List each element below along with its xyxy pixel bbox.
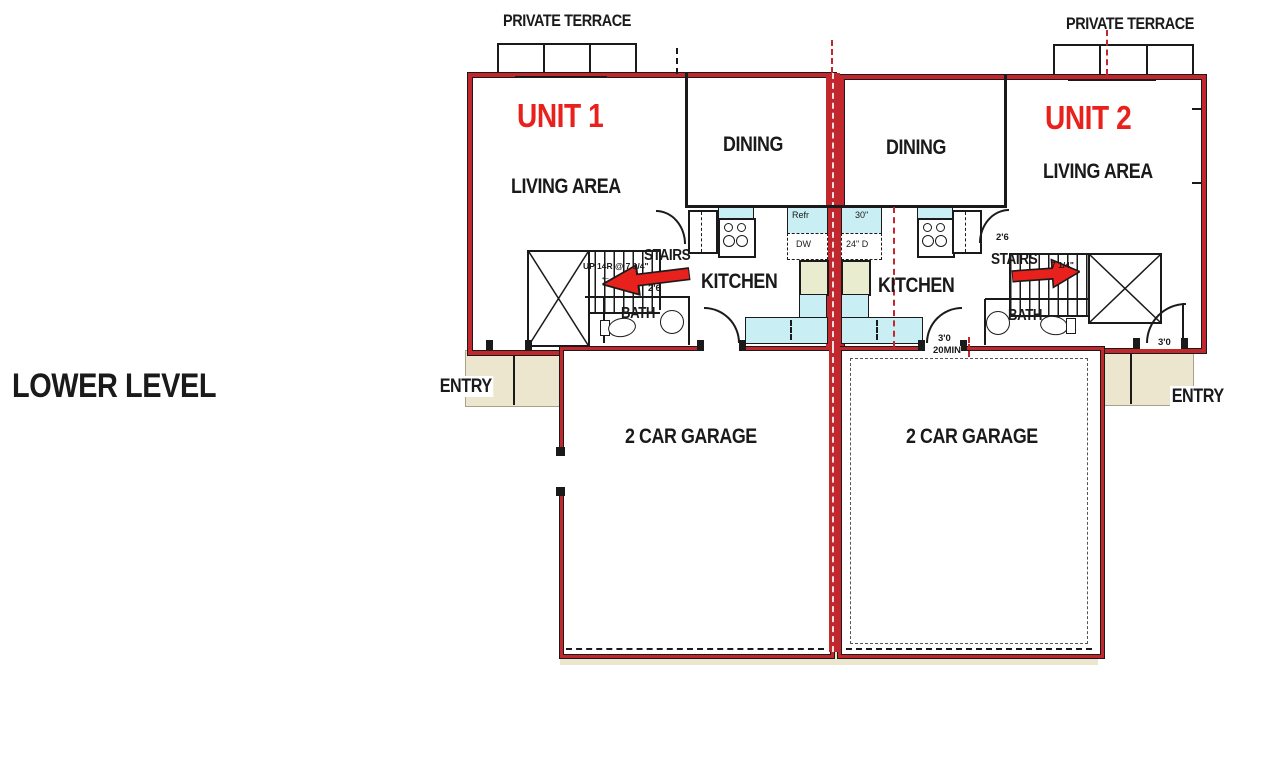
unit2-name: UNIT 2 — [1045, 101, 1131, 134]
unit1-entry-pad-divider — [513, 350, 515, 405]
unit1-dining-label: DINING — [723, 134, 783, 155]
unit2-garage-door-rating: 20MIN — [933, 346, 961, 356]
unit1-stairs-width: 2'6 — [648, 284, 661, 294]
unit2-garage-inset-dashed — [850, 358, 1088, 644]
unit1-garage-side-door-jamb-t — [556, 447, 565, 456]
unit2-terrace-label: PRIVATE TERRACE — [1066, 15, 1194, 32]
unit1-peninsula-counter — [745, 317, 828, 344]
unit1-burner-3 — [723, 235, 735, 247]
unit1-burner-2 — [737, 223, 746, 232]
unit1-bath-label: BATH — [621, 306, 655, 322]
unit1-entry-door-jamb-l — [486, 340, 493, 350]
unit2-dining-label: DINING — [886, 137, 946, 158]
unit1-kitchen-label: KITCHEN — [701, 271, 777, 292]
unit2-pantry — [952, 210, 982, 254]
grid-line-garage2-door — [968, 337, 970, 357]
unit1-entry-label: ENTRY — [438, 376, 493, 397]
unit1-stairs-note: UP 14R @ 7 1/4" — [583, 262, 649, 271]
unit2-entry-label: ENTRY — [1170, 386, 1225, 407]
unit2-garage-door-jamb-l — [918, 340, 925, 351]
unit2-counter-strip — [841, 294, 869, 319]
floor-plan: LOWER LEVEL PRIVATE TERRACE PRIVATE TERR… — [0, 0, 1280, 761]
unit1-garage-door-jamb-l — [697, 340, 704, 351]
unit1-living-dining-wall — [685, 73, 688, 207]
party-wall-garage — [829, 347, 838, 652]
party-wall-grid-line — [831, 40, 833, 73]
unit1-garage-label: 2 CAR GARAGE — [625, 426, 757, 447]
unit1-dishwasher-label: DW — [796, 240, 811, 249]
unit2-closet-x-lines — [1090, 255, 1160, 322]
unit2-dishwasher-label: 24" D — [846, 240, 868, 249]
unit1-garage-door-jamb-r — [739, 340, 746, 351]
unit2-terrace-centerline — [1106, 30, 1108, 75]
unit2-counter-dash — [876, 320, 878, 340]
unit1-burner-4 — [736, 235, 748, 247]
unit2-bath-wall — [985, 298, 1088, 300]
unit2-peninsula-counter — [841, 317, 923, 344]
unit1-entry-door-jamb-r — [525, 340, 532, 350]
unit2-wall-tick-2 — [1192, 182, 1202, 184]
unit2-living-label: LIVING AREA — [1043, 161, 1153, 182]
unit2-terrace-slider — [1068, 79, 1156, 81]
unit2-stairs-note: 7 1/4" — [1051, 261, 1074, 270]
unit2-entry-door-width: 3'0 — [1158, 338, 1171, 348]
unit1-entry-door-opening — [492, 340, 526, 350]
unit2-kitchen-label: KITCHEN — [878, 275, 954, 296]
unit2-burner-1 — [923, 223, 932, 232]
unit1-garage-side-door-opening — [558, 456, 566, 487]
party-wall-upper — [826, 73, 840, 347]
unit2-bath-label: BATH — [1008, 308, 1042, 324]
unit1-garage-outline — [560, 347, 834, 658]
unit1-stairs-label: STAIRS — [644, 248, 690, 264]
unit1-terrace-slider — [515, 76, 607, 78]
unit2-living-dining-wall — [1004, 75, 1007, 207]
unit2-burner-2 — [936, 223, 945, 232]
unit1-counter-dash — [790, 320, 792, 340]
unit1-closet-x — [527, 250, 590, 347]
unit2-wall-tick-1 — [1192, 108, 1202, 110]
unit1-bath-sink — [660, 310, 684, 334]
unit1-grid-dash — [676, 48, 678, 74]
unit2-entry-door-leaf — [1182, 303, 1184, 343]
unit2-toilet-tank — [1066, 318, 1076, 334]
unit1-cooktop — [718, 218, 756, 258]
unit1-closet-x-lines — [529, 252, 588, 345]
unit1-sink — [799, 260, 829, 296]
unit2-burner-4 — [935, 235, 947, 247]
party-wall-centerline — [832, 73, 834, 347]
unit2-stairs-label: STAIRS — [991, 252, 1037, 268]
unit1-refrigerator-label: Refr — [792, 211, 809, 220]
unit2-cooktop — [917, 218, 955, 258]
garage2-door-dash — [846, 648, 1092, 650]
unit2-range-label: 30" — [855, 211, 868, 220]
unit1-pantry — [688, 210, 718, 254]
unit2-door-width: 2'6 — [996, 233, 1009, 243]
unit1-living-label: LIVING AREA — [511, 176, 621, 197]
garage1-door-dash — [566, 648, 824, 650]
unit1-burner-1 — [724, 223, 733, 232]
unit2-burner-3 — [922, 235, 934, 247]
unit2-entry-pad-divider — [1130, 350, 1132, 404]
unit2-terrace-planters — [1053, 44, 1194, 78]
unit1-terrace-planters — [497, 43, 637, 77]
unit1-counter-strip — [799, 294, 827, 319]
unit1-garage-side-door-jamb-b — [556, 487, 565, 496]
unit1-bath-wall — [585, 296, 690, 298]
unit2-entry-door-jamb-l — [1133, 338, 1140, 349]
plan-title: LOWER LEVEL — [12, 369, 216, 403]
unit2-bath-sink — [986, 311, 1010, 335]
unit2-garage-door-width: 3'0 — [938, 334, 951, 344]
unit1-terrace-label: PRIVATE TERRACE — [503, 12, 631, 29]
unit1-kitchen-bath-wall — [688, 297, 690, 345]
unit2-garage-label: 2 CAR GARAGE — [906, 426, 1038, 447]
unit2-sink — [841, 260, 871, 296]
party-wall-garage-centerline — [832, 347, 834, 652]
unit1-name: UNIT 1 — [517, 99, 603, 132]
unit2-closet-x — [1088, 253, 1162, 324]
unit1-stairs-note-arrow-icon: ← — [600, 272, 611, 283]
